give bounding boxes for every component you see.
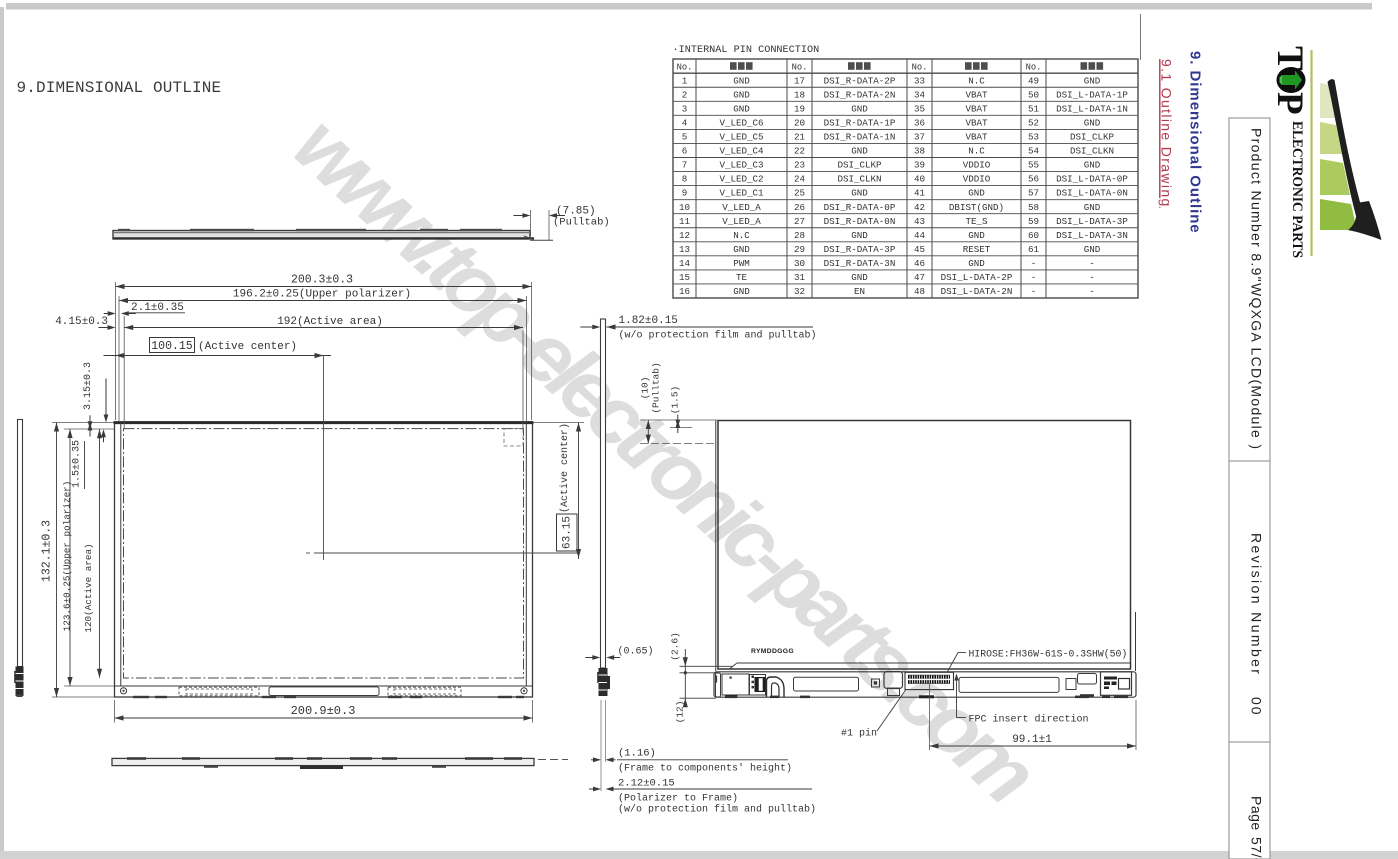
svg-text:-: - <box>1089 258 1095 269</box>
svg-text:4.15±0.3: 4.15±0.3 <box>55 316 108 328</box>
svg-text:Page: Page <box>1249 796 1265 831</box>
svg-text:9.DIMENSIONAL OUTLINE: 9.DIMENSIONAL OUTLINE <box>17 79 222 97</box>
svg-text:DSI_CLKN: DSI_CLKN <box>837 174 881 185</box>
svg-text:56: 56 <box>1028 174 1039 185</box>
svg-text:(0.65): (0.65) <box>618 646 654 658</box>
svg-text:19: 19 <box>794 103 805 114</box>
svg-text:·INTERNAL PIN CONNECTION: ·INTERNAL PIN CONNECTION <box>673 45 820 56</box>
svg-text:RESET: RESET <box>963 244 991 255</box>
svg-text:V_LED_C2: V_LED_C2 <box>719 174 763 185</box>
svg-text:2: 2 <box>682 89 688 100</box>
svg-text:(w/o protection film and pullt: (w/o protection film and pulltab) <box>618 804 816 816</box>
svg-text:V_LED_C4: V_LED_C4 <box>719 146 764 157</box>
svg-text:14: 14 <box>679 258 691 269</box>
svg-text:DSI_L-DATA-0P: DSI_L-DATA-0P <box>1056 174 1128 185</box>
svg-text:6: 6 <box>682 146 688 157</box>
svg-text:35: 35 <box>914 103 925 114</box>
svg-text:1.82±0.15: 1.82±0.15 <box>619 315 678 327</box>
svg-text:DSI_R-DATA-0N: DSI_R-DATA-0N <box>824 216 896 227</box>
svg-text:TE_S: TE_S <box>965 216 988 227</box>
svg-text:V_LED_C6: V_LED_C6 <box>719 117 763 128</box>
svg-text:52: 52 <box>1028 117 1039 128</box>
svg-text:RYMDDGGG: RYMDDGGG <box>751 648 794 655</box>
svg-text:9: 9 <box>682 188 688 199</box>
svg-text:99.1±1: 99.1±1 <box>1012 734 1052 746</box>
svg-text:DSI_L-DATA-2N: DSI_L-DATA-2N <box>941 286 1013 297</box>
svg-text:-: - <box>1031 286 1037 297</box>
svg-text:GND: GND <box>968 230 985 241</box>
svg-text:DSI_R-DATA-2P: DSI_R-DATA-2P <box>824 75 896 86</box>
svg-text:FPC insert direction: FPC insert direction <box>969 714 1089 726</box>
svg-text:132.1±0.3: 132.1±0.3 <box>41 520 54 582</box>
svg-text:No.: No. <box>792 62 808 72</box>
svg-text:(Active center): (Active center) <box>559 423 571 513</box>
svg-text:ELECTRONIC PARTS: ELECTRONIC PARTS <box>1289 121 1305 258</box>
svg-text:11: 11 <box>679 216 691 227</box>
svg-text:DSI_L-DATA-2P: DSI_L-DATA-2P <box>941 272 1013 283</box>
svg-text:30: 30 <box>794 258 805 269</box>
svg-text:No.: No. <box>912 62 928 72</box>
svg-text:V_LED_A: V_LED_A <box>722 202 761 213</box>
svg-text:38: 38 <box>914 146 925 157</box>
svg-text:DBIST(GND): DBIST(GND) <box>949 202 1004 213</box>
svg-text:DSI_L-DATA-0N: DSI_L-DATA-0N <box>1056 188 1128 199</box>
svg-text:GND: GND <box>851 272 868 283</box>
svg-text:GND: GND <box>1084 117 1101 128</box>
svg-text:N.C: N.C <box>733 230 750 241</box>
svg-text:DSI_L-DATA-3N: DSI_L-DATA-3N <box>1056 230 1128 241</box>
svg-text:13: 13 <box>679 244 690 255</box>
svg-text:GND: GND <box>1084 160 1101 171</box>
svg-text:(Pulltab): (Pulltab) <box>553 217 610 229</box>
svg-text:33: 33 <box>914 75 925 86</box>
svg-text:GND: GND <box>1084 75 1101 86</box>
svg-text:200.3±0.3: 200.3±0.3 <box>291 274 353 287</box>
svg-text:196.2±0.25(Upper polarizer): 196.2±0.25(Upper polarizer) <box>233 289 411 301</box>
svg-text:61: 61 <box>1028 244 1040 255</box>
svg-text:(Pulltab): (Pulltab) <box>651 362 662 413</box>
svg-text:Revision Number: Revision Number <box>1249 533 1265 676</box>
svg-text:123.6±0.25(Upper polarizer): 123.6±0.25(Upper polarizer) <box>62 481 73 632</box>
svg-text:V_LED_C5: V_LED_C5 <box>719 132 763 143</box>
svg-text:DSI_R-DATA-0P: DSI_R-DATA-0P <box>824 202 896 213</box>
svg-text:1: 1 <box>682 75 688 86</box>
svg-text:36: 36 <box>914 117 925 128</box>
svg-text:-: - <box>1089 272 1095 283</box>
svg-text:2.1±0.35: 2.1±0.35 <box>131 302 184 314</box>
svg-text:N.C: N.C <box>968 146 985 157</box>
svg-text:GND: GND <box>968 258 985 269</box>
svg-text:1.5±0.35: 1.5±0.35 <box>72 440 83 488</box>
svg-text:200.9±0.3: 200.9±0.3 <box>291 704 356 718</box>
svg-text:51: 51 <box>1028 103 1040 114</box>
svg-text:40: 40 <box>914 174 925 185</box>
svg-text:32: 32 <box>794 286 805 297</box>
svg-text:(Active center): (Active center) <box>198 341 297 353</box>
svg-text:DSI_R-DATA-3N: DSI_R-DATA-3N <box>824 258 896 269</box>
svg-text:2.12±0.15: 2.12±0.15 <box>618 778 675 790</box>
svg-text:25: 25 <box>794 188 805 199</box>
svg-text:VDDIO: VDDIO <box>963 160 991 171</box>
svg-text:22: 22 <box>794 146 805 157</box>
svg-text:57: 57 <box>1028 188 1039 199</box>
svg-text:-: - <box>1031 272 1037 283</box>
svg-text:20: 20 <box>794 117 805 128</box>
svg-text:EN: EN <box>854 286 865 297</box>
svg-text:-: - <box>1089 286 1095 297</box>
svg-text:49: 49 <box>1028 75 1039 86</box>
svg-text:GND: GND <box>851 230 868 241</box>
svg-text:DSI_CLKN: DSI_CLKN <box>1070 146 1114 157</box>
svg-text:3.15±0.3: 3.15±0.3 <box>83 362 94 410</box>
svg-text:00: 00 <box>1249 697 1265 717</box>
svg-text:59: 59 <box>1028 216 1039 227</box>
svg-text:GND: GND <box>733 75 750 86</box>
svg-text:28: 28 <box>794 230 805 241</box>
svg-text:44: 44 <box>914 230 926 241</box>
svg-text:DSI_L-DATA-1N: DSI_L-DATA-1N <box>1056 103 1128 114</box>
svg-text:8: 8 <box>682 174 688 185</box>
svg-text:192(Active area): 192(Active area) <box>277 316 383 328</box>
svg-text:46: 46 <box>914 258 925 269</box>
svg-text:47: 47 <box>914 272 925 283</box>
svg-text:31: 31 <box>794 272 806 283</box>
svg-text:57/6: 57/6 <box>1249 837 1265 859</box>
svg-text:(1.5): (1.5) <box>670 386 681 415</box>
svg-text:23: 23 <box>794 160 805 171</box>
svg-text:18: 18 <box>794 89 805 100</box>
svg-text:27: 27 <box>794 216 805 227</box>
svg-text:V_LED_C1: V_LED_C1 <box>719 188 764 199</box>
svg-text:PWM: PWM <box>733 258 750 269</box>
svg-text:120(Active area): 120(Active area) <box>83 543 94 632</box>
svg-text:HIROSE:FH36W-61S-0.3SHW(50): HIROSE:FH36W-61S-0.3SHW(50) <box>969 649 1128 660</box>
svg-text:DSI_L-DATA-1P: DSI_L-DATA-1P <box>1056 89 1128 100</box>
svg-text:GND: GND <box>733 89 750 100</box>
svg-text:(w/o protection film and pullt: (w/o protection film and pulltab) <box>619 330 817 342</box>
svg-text:29: 29 <box>794 244 805 255</box>
svg-text:54: 54 <box>1028 146 1040 157</box>
svg-text:39: 39 <box>914 160 925 171</box>
svg-text:41: 41 <box>914 188 926 199</box>
svg-text:53: 53 <box>1028 132 1039 143</box>
svg-text:(10): (10) <box>640 377 651 400</box>
svg-text:DSI_R-DATA-1N: DSI_R-DATA-1N <box>824 132 896 143</box>
svg-text:GND: GND <box>1084 244 1101 255</box>
svg-text:12: 12 <box>679 230 690 241</box>
svg-text:(1.16): (1.16) <box>618 748 656 760</box>
svg-text:No.: No. <box>677 62 693 72</box>
svg-text:5: 5 <box>682 132 688 143</box>
svg-text:GND: GND <box>851 188 868 199</box>
svg-text:VBAT: VBAT <box>965 117 988 128</box>
svg-text:VBAT: VBAT <box>965 132 988 143</box>
svg-text:42: 42 <box>914 202 925 213</box>
svg-text:60: 60 <box>1028 230 1039 241</box>
svg-text:(2.6): (2.6) <box>670 632 681 661</box>
svg-text:17: 17 <box>794 75 805 86</box>
svg-text:21: 21 <box>794 132 806 143</box>
svg-text:4: 4 <box>682 117 688 128</box>
svg-text:V_LED_C3: V_LED_C3 <box>719 160 763 171</box>
svg-text:(Polarizer to Frame): (Polarizer to Frame) <box>618 793 738 805</box>
svg-text:GND: GND <box>1084 202 1101 213</box>
svg-text:DSI_R-DATA-1P: DSI_R-DATA-1P <box>824 117 896 128</box>
svg-text:DSI_R-DATA-3P: DSI_R-DATA-3P <box>824 244 896 255</box>
svg-text:GND: GND <box>733 103 750 114</box>
svg-text:(12): (12) <box>675 701 686 724</box>
svg-text:DSI_L-DATA-3P: DSI_L-DATA-3P <box>1056 216 1128 227</box>
svg-text:7: 7 <box>682 160 688 171</box>
svg-text:DSI_CLKP: DSI_CLKP <box>1070 132 1115 143</box>
svg-text:VBAT: VBAT <box>965 89 988 100</box>
svg-text:GND: GND <box>733 244 750 255</box>
svg-text:DSI_R-DATA-2N: DSI_R-DATA-2N <box>824 89 896 100</box>
svg-text:37: 37 <box>914 132 925 143</box>
svg-text:#1 pin: #1 pin <box>841 728 877 740</box>
svg-text:55: 55 <box>1028 160 1039 171</box>
svg-text:GND: GND <box>968 188 985 199</box>
svg-text:-: - <box>1031 258 1037 269</box>
svg-text:N.C: N.C <box>968 75 985 86</box>
svg-text:(Frame to components' height): (Frame to components' height) <box>618 763 792 775</box>
svg-text:50: 50 <box>1028 89 1039 100</box>
svg-text:GND: GND <box>851 103 868 114</box>
svg-text:DSI_CLKP: DSI_CLKP <box>837 160 882 171</box>
svg-text:9.1 Outline Drawing: 9.1 Outline Drawing <box>1159 59 1175 208</box>
svg-text:No.: No. <box>1026 62 1042 72</box>
svg-text:58: 58 <box>1028 202 1039 213</box>
svg-text:100.15: 100.15 <box>151 340 193 353</box>
svg-text:P: P <box>1269 92 1310 114</box>
svg-text:34: 34 <box>914 89 926 100</box>
svg-text:10: 10 <box>679 202 690 213</box>
svg-text:TE: TE <box>736 272 748 283</box>
svg-text:15: 15 <box>679 272 690 283</box>
svg-text:3: 3 <box>682 103 688 114</box>
svg-text:24: 24 <box>794 174 806 185</box>
svg-text:VBAT: VBAT <box>965 103 988 114</box>
svg-text:9. Dimensional Outline: 9. Dimensional Outline <box>1187 51 1204 234</box>
svg-text:16: 16 <box>679 286 690 297</box>
svg-text:GND: GND <box>851 146 868 157</box>
svg-text:45: 45 <box>914 244 925 255</box>
svg-text:V_LED_A: V_LED_A <box>722 216 761 227</box>
svg-text:63.15: 63.15 <box>562 516 574 549</box>
svg-text:26: 26 <box>794 202 805 213</box>
svg-text:VDDIO: VDDIO <box>963 174 991 185</box>
svg-text:GND: GND <box>733 286 750 297</box>
svg-text:43: 43 <box>914 216 925 227</box>
svg-text:Product Number 8.9"WQXGA LCD(M: Product Number 8.9"WQXGA LCD(Module ) <box>1249 128 1265 450</box>
svg-text:48: 48 <box>914 286 925 297</box>
